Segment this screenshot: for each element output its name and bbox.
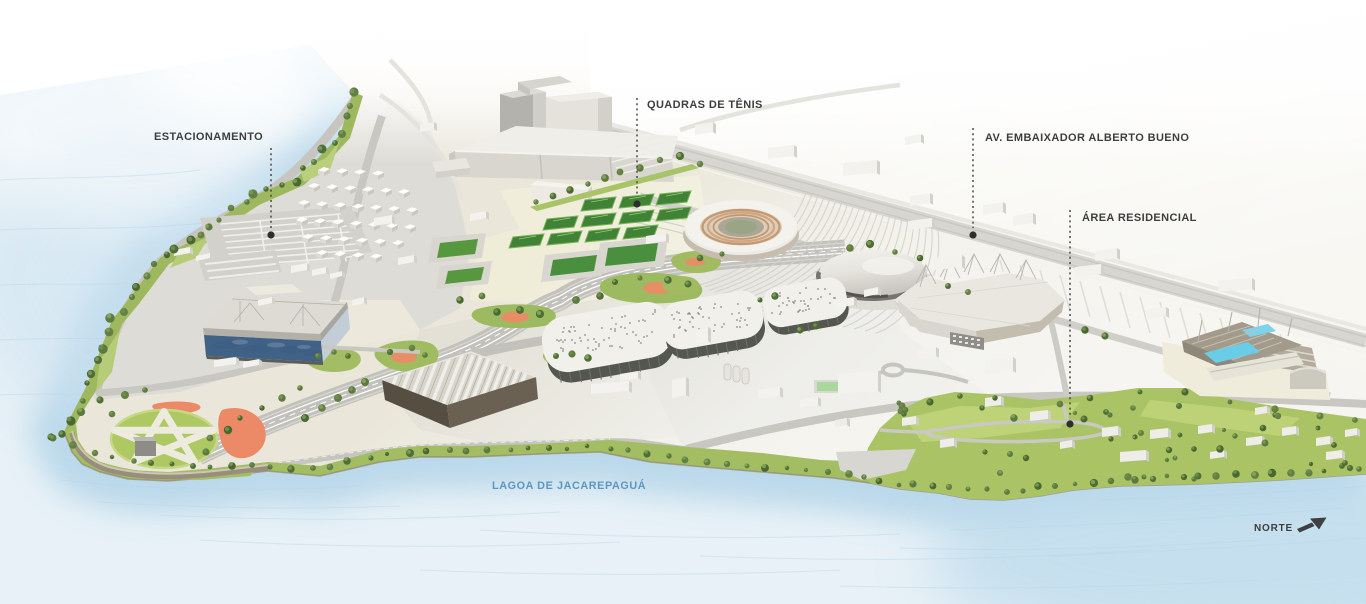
svg-text:NORTE: NORTE [1254, 523, 1293, 534]
svg-text:ÁREA RESIDENCIAL: ÁREA RESIDENCIAL [1082, 211, 1197, 224]
svg-text:AV. EMBAIXADOR ALBERTO BUENO: AV. EMBAIXADOR ALBERTO BUENO [985, 132, 1189, 144]
svg-text:QUADRAS DE TÊNIS: QUADRAS DE TÊNIS [647, 98, 763, 111]
svg-text:ESTACIONAMENTO: ESTACIONAMENTO [154, 131, 263, 143]
svg-text:LAGOA DE JACAREPAGUÁ: LAGOA DE JACAREPAGUÁ [492, 479, 646, 492]
